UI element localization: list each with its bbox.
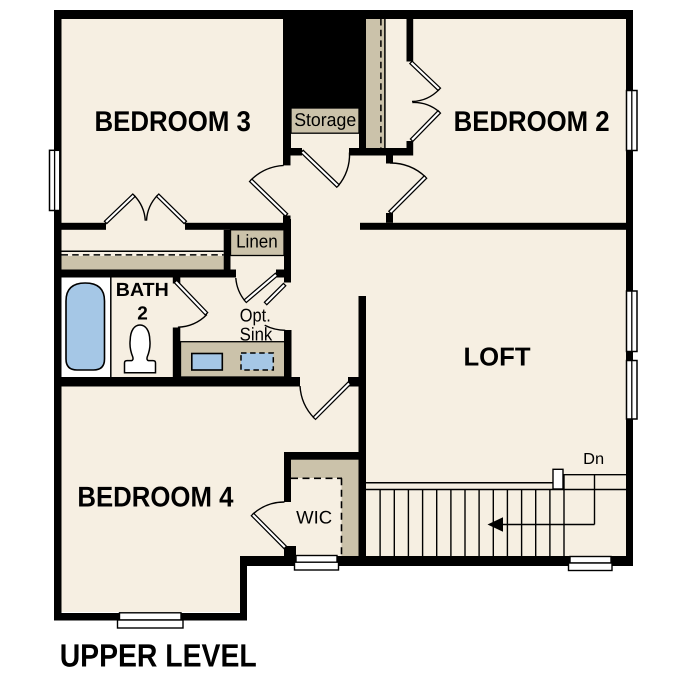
svg-text:Linen: Linen <box>236 230 278 251</box>
svg-text:UPPER LEVEL: UPPER LEVEL <box>60 638 257 674</box>
svg-text:Sink: Sink <box>240 323 273 344</box>
svg-text:2: 2 <box>137 304 148 325</box>
svg-text:LOFT: LOFT <box>464 342 531 372</box>
svg-text:BEDROOM 3: BEDROOM 3 <box>95 106 251 138</box>
svg-text:BEDROOM 4: BEDROOM 4 <box>77 482 233 514</box>
svg-text:WIC: WIC <box>296 507 332 527</box>
svg-text:BATH: BATH <box>116 280 169 301</box>
svg-text:Storage: Storage <box>294 109 356 130</box>
svg-text:Opt.: Opt. <box>240 304 271 325</box>
svg-text:Dn: Dn <box>583 451 604 468</box>
svg-text:BEDROOM 2: BEDROOM 2 <box>454 106 610 138</box>
